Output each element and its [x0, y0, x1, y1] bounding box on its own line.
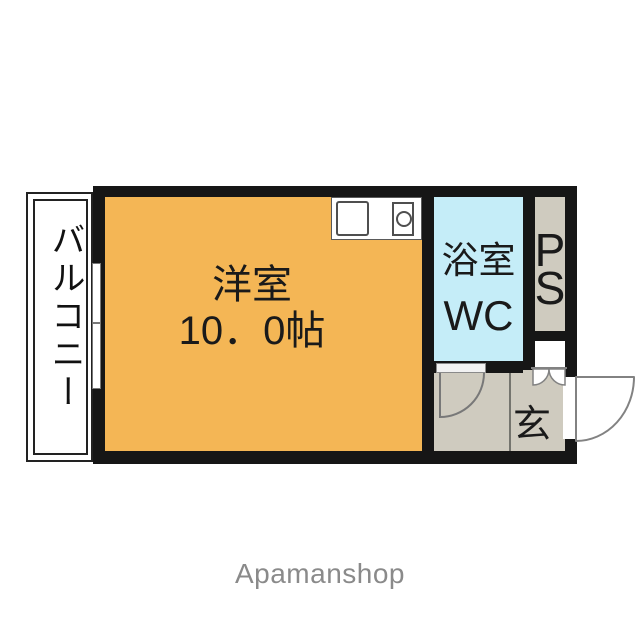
bathroom-label: 浴室 WC	[434, 233, 523, 343]
main-room-size: 10．0帖	[132, 308, 372, 354]
balcony-label: バルコニー	[46, 222, 84, 432]
bathroom-label-line2: WC	[434, 288, 523, 343]
wall-main-bath	[422, 186, 434, 464]
wall-top	[93, 186, 577, 197]
entrance-door-opening	[563, 377, 579, 439]
main-room-name: 洋室	[132, 262, 372, 308]
pipe-space-label: P S	[534, 231, 566, 307]
entrance-door-swing	[576, 377, 634, 441]
floorplan-canvas: 洋室 10．0帖 浴室 WC P S 玄 バルコニー Apamanshop	[0, 0, 640, 640]
bathroom-label-line1: 浴室	[434, 233, 523, 288]
balcony-window	[92, 263, 101, 389]
room-corridor	[434, 373, 511, 451]
entrance-closet-box	[535, 341, 565, 367]
wall-ps-bottom	[523, 331, 577, 341]
kitchen-burner-icon	[396, 211, 412, 227]
pipe-space-label-line2: S	[534, 269, 566, 307]
main-room-label: 洋室 10．0帖	[132, 262, 372, 354]
bathroom-door-threshold	[436, 363, 486, 373]
entrance-label: 玄	[507, 393, 557, 448]
kitchen-sink-icon	[336, 201, 369, 236]
balcony-window-seam	[92, 322, 101, 324]
brand-watermark: Apamanshop	[0, 558, 640, 590]
wall-bottom	[93, 451, 577, 464]
